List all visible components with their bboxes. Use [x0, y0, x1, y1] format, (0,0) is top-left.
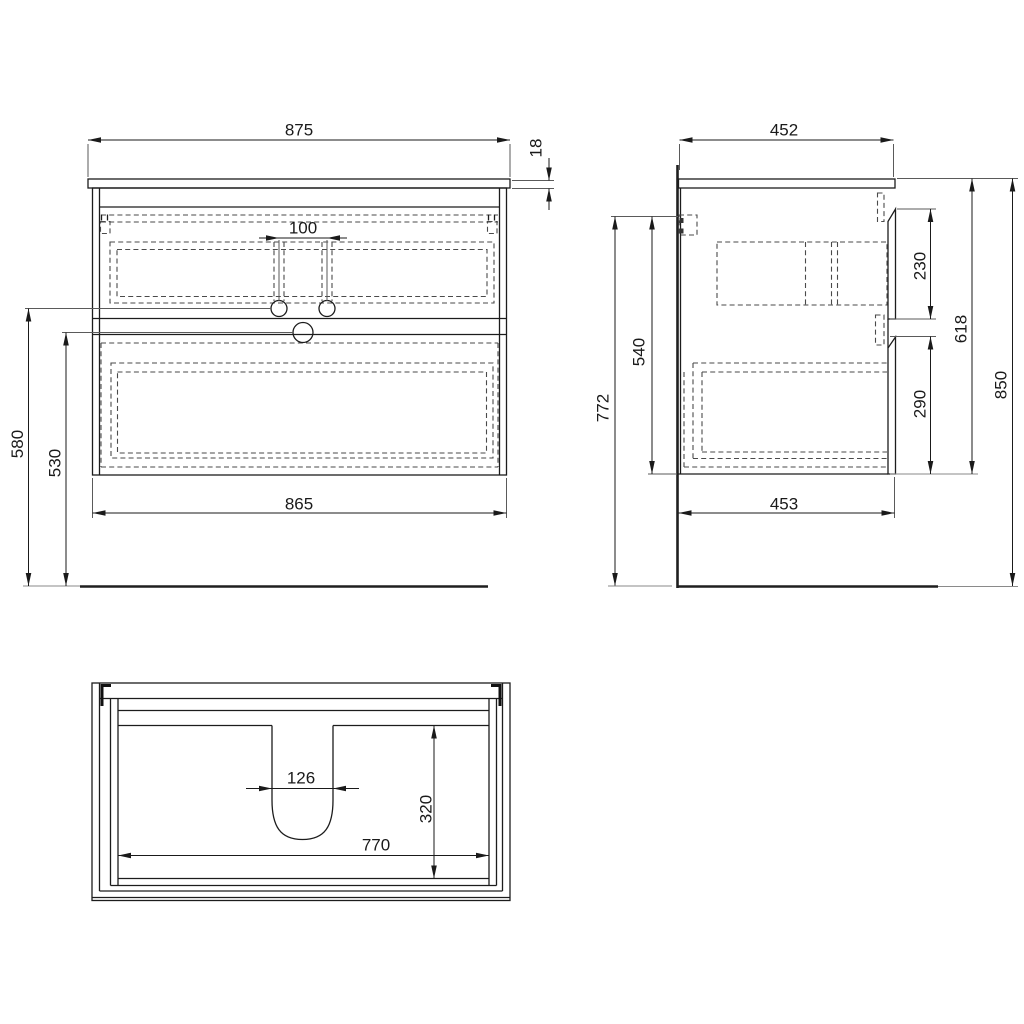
- dim-label-126: 126: [287, 769, 315, 788]
- dim-label-320: 320: [417, 795, 436, 823]
- dim-drain-height: 530: [46, 333, 294, 587]
- technical-drawing-page: 875 18 100 865 580: [0, 0, 1024, 1024]
- dim-label-18: 18: [527, 139, 546, 158]
- top-view: 126 320 770: [92, 683, 510, 901]
- dim-faucet-spacing: 100: [259, 219, 347, 302]
- dim-countertop-depth: 452: [680, 121, 894, 178]
- dim-label-618: 618: [952, 315, 971, 343]
- dim-lower-drawer-height: 290: [890, 337, 978, 475]
- dim-overall-width: 875: [88, 121, 510, 178]
- side-cabinet: [678, 188, 889, 474]
- mounting-bracket-left: [101, 215, 111, 234]
- dim-interior-width: 770: [118, 836, 489, 856]
- dim-cutout-width: 126: [246, 769, 359, 789]
- dim-label-290: 290: [911, 390, 930, 418]
- front-drawer-boxes-dashed: [101, 215, 498, 467]
- dim-label-540: 540: [630, 338, 649, 366]
- vanity-cabinet-drawing: 875 18 100 865 580: [0, 0, 1024, 1024]
- front-countertop: [88, 179, 510, 188]
- dim-label-230: 230: [911, 252, 930, 280]
- mounting-bracket-right: [488, 215, 498, 234]
- dim-overall-height: 850: [992, 179, 1013, 587]
- dim-cabinet-width: 865: [93, 478, 507, 518]
- dim-cabinet-height: 618: [897, 179, 1018, 475]
- dim-label-875: 875: [285, 121, 313, 140]
- faucet-hole-right: [319, 301, 335, 317]
- front-view: 875 18 100 865 580: [8, 121, 554, 587]
- front-floor-line: [23, 586, 488, 587]
- side-drawer-boxes-dashed: [684, 242, 887, 467]
- dim-label-865: 865: [285, 495, 313, 514]
- plan-countertop-outline: [92, 683, 510, 901]
- dim-label-580: 580: [8, 430, 27, 458]
- dim-label-100: 100: [289, 219, 317, 238]
- side-countertop: [679, 179, 896, 188]
- dim-mount-to-bottom: 540: [611, 217, 678, 475]
- drain-hole: [293, 323, 313, 343]
- dim-label-453: 453: [770, 495, 798, 514]
- dim-countertop-thickness: 18: [512, 139, 554, 210]
- dim-faucet-height: 580: [8, 309, 271, 587]
- dim-mount-to-floor: 772: [594, 217, 673, 587]
- dim-upper-drawer-height: 230: [890, 209, 936, 319]
- dim-label-452: 452: [770, 121, 798, 140]
- dim-label-530: 530: [46, 449, 65, 477]
- dim-label-770: 770: [362, 836, 390, 855]
- dim-cabinet-depth: 453: [679, 477, 895, 518]
- side-view: 452 540 772 230 290 618: [594, 121, 1019, 589]
- dim-label-850: 850: [992, 371, 1011, 399]
- dim-label-772: 772: [594, 394, 613, 422]
- lower-drawer-front: [876, 315, 896, 474]
- plan-hinge-mark-left: [101, 684, 111, 706]
- side-wall-bracket: [679, 215, 697, 235]
